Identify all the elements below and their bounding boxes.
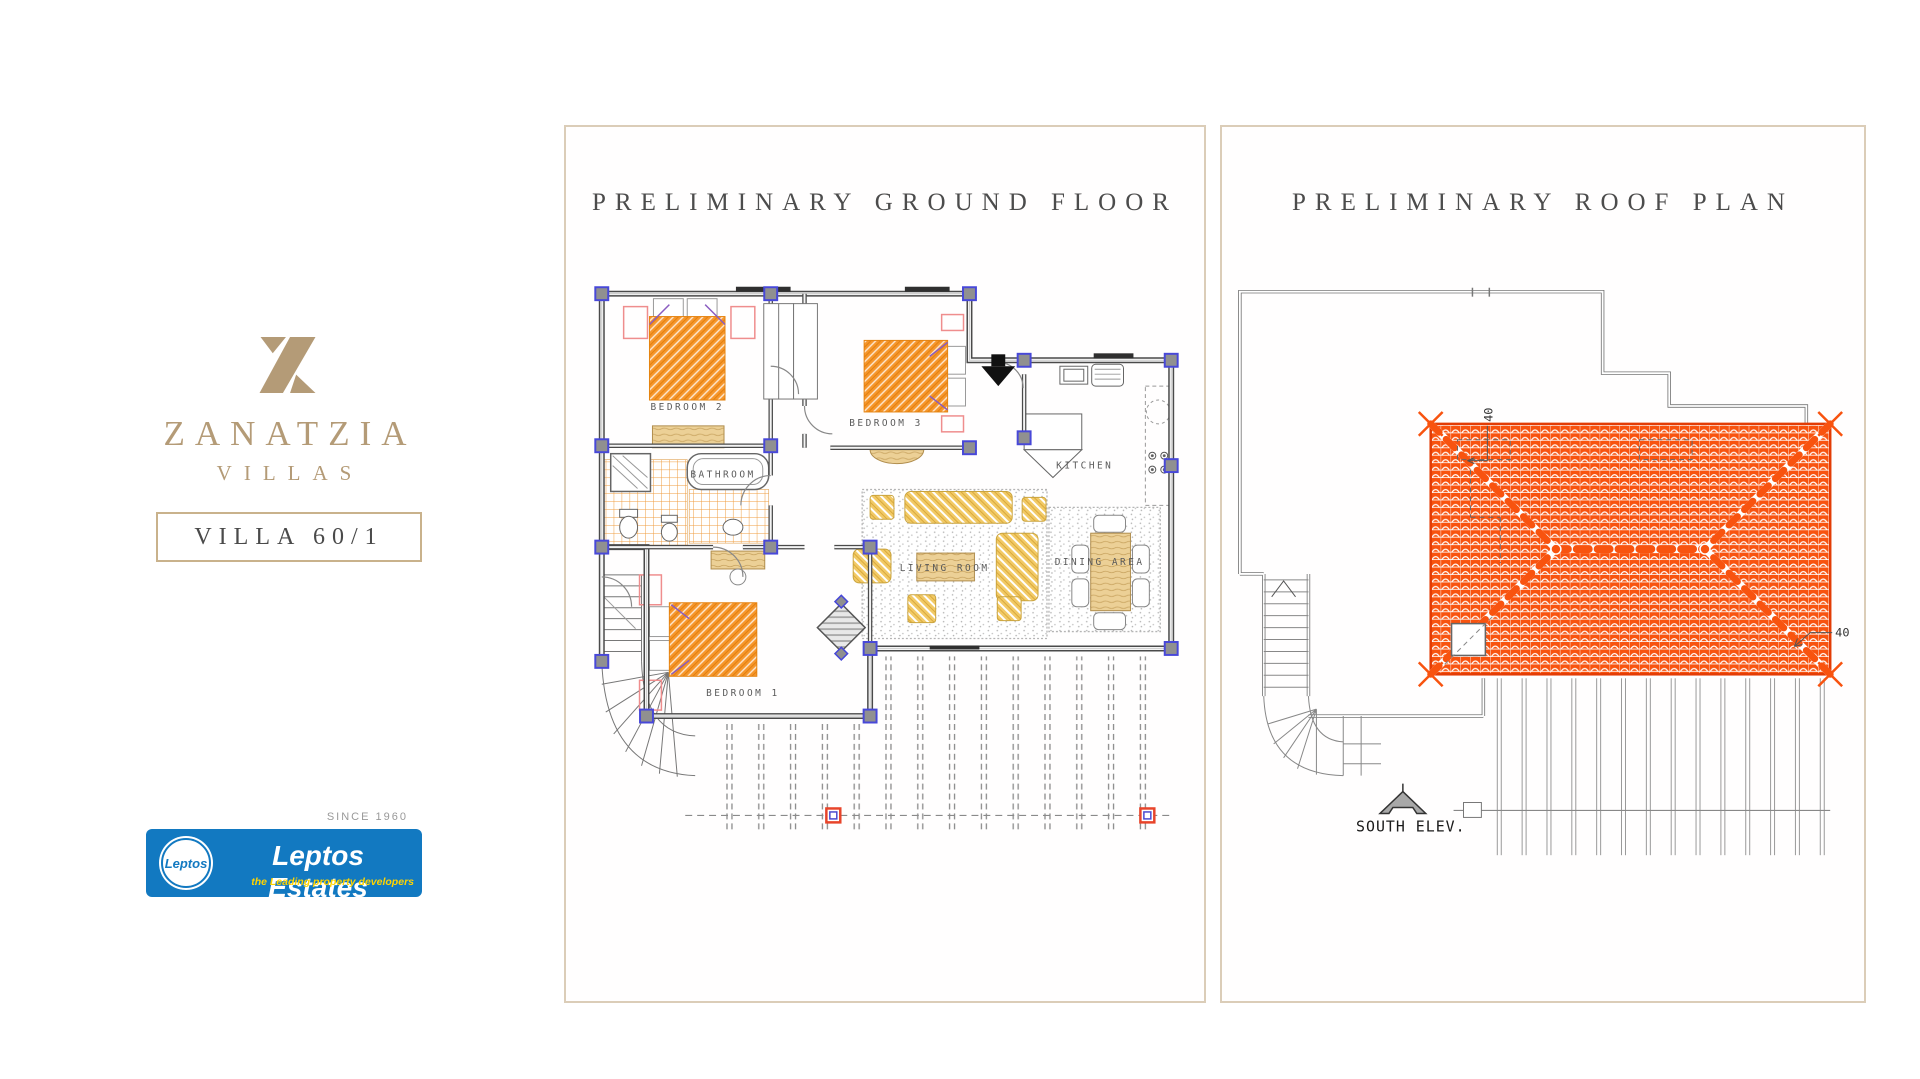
- leptos-tagline: the Leading property developers: [251, 876, 414, 888]
- roof-pergola: [1454, 678, 1831, 855]
- bedroom3-label: BEDROOM 3: [849, 418, 923, 429]
- dining-area-label: DINING AREA: [1055, 557, 1145, 568]
- pergola-area: [685, 656, 1172, 831]
- brand-name: ZANATZIA: [120, 414, 460, 454]
- villa-label-box: VILLA 60/1: [156, 512, 422, 562]
- kitchen-fixtures: [1024, 364, 1171, 505]
- leptos-estates-logo: Leptos Leptos Estates the Leading proper…: [146, 829, 422, 897]
- leptos-name: Leptos Estates: [220, 840, 416, 904]
- kitchen-label: KITCHEN: [1056, 461, 1113, 472]
- bench: [870, 450, 924, 464]
- leptos-badge-icon: Leptos: [159, 836, 213, 890]
- bedroom1-label: BEDROOM 1: [706, 688, 780, 699]
- roof-plan: 40 40 SOUTH ELEV.: [1222, 127, 1864, 1001]
- ground-floor-plan: BEDROOM 2 BEDROOM 3 BATHROOM KITCHEN LIV…: [566, 127, 1204, 1001]
- svg-text:40: 40: [1835, 626, 1849, 640]
- svg-text:40: 40: [1481, 408, 1495, 422]
- bedroom2-label: BEDROOM 2: [650, 402, 724, 413]
- villa-label: VILLA 60/1: [194, 524, 383, 551]
- since-label: SINCE 1960: [120, 811, 408, 823]
- south-elevation-label: SOUTH ELEV.: [1356, 817, 1466, 835]
- brochure-page: { "brand": { "logo": "zanatzia-monogram"…: [0, 0, 1920, 1079]
- leptos-badge-text: Leptos: [161, 838, 211, 888]
- pergola-post: [826, 808, 840, 822]
- bathroom-floor-tiles: [689, 489, 769, 543]
- hall-closet: [764, 304, 818, 399]
- hipped-roof: [1419, 412, 1842, 686]
- bed-bedroom3: [864, 315, 965, 432]
- zanatzia-logo-icon: [258, 336, 316, 394]
- living-room-label: LIVING ROOM: [900, 563, 990, 574]
- south-elevation-arrow-icon: [1380, 784, 1426, 814]
- ground-floor-panel: PRELIMINARY GROUND FLOOR: [564, 125, 1206, 1003]
- pergola-post: [1140, 808, 1154, 822]
- bathroom-label: BATHROOM: [690, 470, 755, 481]
- roof-exterior-stairs: [1264, 580, 1381, 776]
- bed-bedroom2: [624, 299, 755, 400]
- brand-type: VILLAS: [120, 461, 460, 486]
- roof-plan-panel: PRELIMINARY ROOF PLAN: [1220, 125, 1866, 1003]
